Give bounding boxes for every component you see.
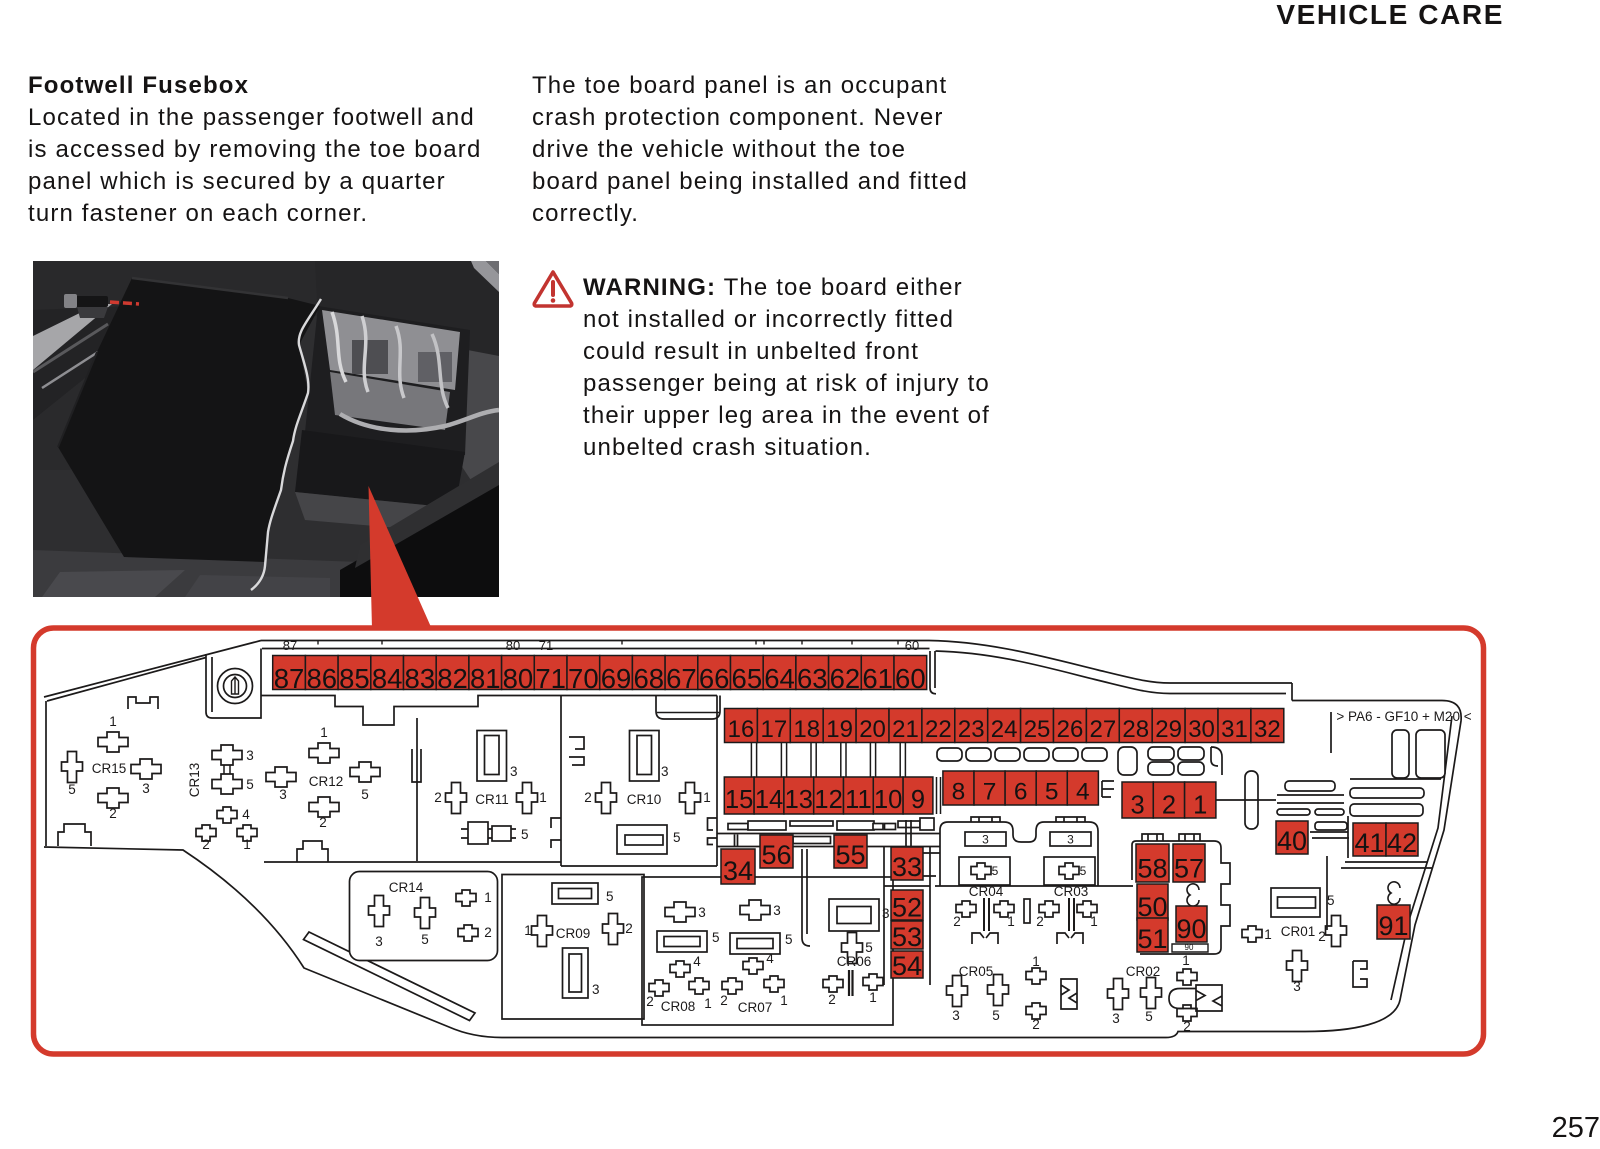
- svg-text:5: 5: [421, 932, 429, 947]
- svg-text:60: 60: [895, 663, 926, 694]
- svg-text:58: 58: [1137, 854, 1167, 884]
- svg-text:CR09: CR09: [556, 926, 591, 941]
- svg-text:CR15: CR15: [92, 761, 127, 776]
- svg-text:1: 1: [1193, 792, 1207, 820]
- svg-text:91: 91: [1378, 911, 1408, 941]
- svg-text:20: 20: [859, 716, 886, 743]
- svg-text:2: 2: [584, 790, 592, 805]
- svg-text:71: 71: [539, 638, 553, 653]
- svg-text:2: 2: [202, 837, 210, 852]
- svg-text:64: 64: [764, 663, 795, 694]
- svg-text:3: 3: [246, 748, 254, 763]
- svg-text:29: 29: [1155, 716, 1182, 743]
- svg-text:69: 69: [601, 663, 632, 694]
- svg-text:1: 1: [869, 990, 877, 1005]
- svg-text:3: 3: [882, 906, 890, 921]
- svg-text:90: 90: [1176, 914, 1206, 944]
- svg-text:CR03: CR03: [1054, 884, 1089, 899]
- svg-text:71: 71: [535, 663, 566, 694]
- svg-text:CR12: CR12: [309, 774, 344, 789]
- svg-text:23: 23: [958, 716, 985, 743]
- svg-text:86: 86: [306, 663, 337, 694]
- svg-text:1: 1: [1182, 953, 1190, 968]
- svg-text:65: 65: [732, 663, 763, 694]
- svg-text:60: 60: [905, 638, 919, 653]
- svg-text:5: 5: [992, 864, 999, 878]
- svg-text:5: 5: [606, 889, 614, 904]
- svg-text:63: 63: [797, 663, 828, 694]
- svg-text:87: 87: [283, 638, 297, 653]
- svg-text:2: 2: [484, 925, 492, 940]
- svg-text:10: 10: [874, 786, 902, 814]
- svg-text:82: 82: [437, 663, 468, 694]
- svg-text:1: 1: [780, 993, 788, 1008]
- svg-text:1: 1: [1264, 927, 1272, 942]
- svg-text:CR07: CR07: [738, 1000, 773, 1015]
- svg-text:2: 2: [1183, 1019, 1191, 1034]
- svg-text:33: 33: [892, 852, 922, 882]
- svg-text:53: 53: [892, 922, 922, 952]
- svg-text:62: 62: [830, 663, 861, 694]
- svg-text:6: 6: [1014, 779, 1028, 806]
- svg-text:CR05: CR05: [959, 964, 994, 979]
- svg-text:3: 3: [982, 833, 989, 847]
- svg-text:67: 67: [666, 663, 697, 694]
- svg-text:> PA6 - GF10 + M20 <: > PA6 - GF10 + M20 <: [1336, 709, 1471, 724]
- svg-text:2: 2: [720, 993, 728, 1008]
- svg-text:3: 3: [1293, 979, 1301, 994]
- svg-text:14: 14: [755, 786, 783, 814]
- svg-text:CR11: CR11: [475, 792, 509, 807]
- svg-text:1: 1: [1090, 914, 1098, 929]
- svg-text:3: 3: [698, 905, 706, 920]
- svg-text:4: 4: [766, 951, 774, 966]
- svg-text:31: 31: [1221, 716, 1248, 743]
- svg-text:3: 3: [142, 781, 150, 796]
- svg-text:81: 81: [470, 663, 501, 694]
- svg-text:1: 1: [539, 790, 547, 805]
- svg-text:42: 42: [1387, 828, 1417, 858]
- svg-text:5: 5: [673, 830, 681, 845]
- svg-text:2: 2: [1032, 1017, 1040, 1032]
- svg-text:56: 56: [761, 840, 791, 870]
- svg-text:3: 3: [510, 764, 518, 779]
- svg-text:5: 5: [992, 1008, 1000, 1023]
- svg-text:21: 21: [892, 716, 919, 743]
- svg-text:32: 32: [1254, 716, 1281, 743]
- svg-text:4: 4: [693, 954, 701, 969]
- svg-text:CR13: CR13: [187, 763, 202, 798]
- svg-text:2: 2: [646, 994, 654, 1009]
- svg-text:87: 87: [274, 663, 305, 694]
- svg-text:4: 4: [1076, 779, 1090, 806]
- svg-text:52: 52: [892, 893, 922, 923]
- svg-text:85: 85: [339, 663, 370, 694]
- svg-text:66: 66: [699, 663, 730, 694]
- svg-text:70: 70: [568, 663, 599, 694]
- svg-text:1: 1: [703, 790, 711, 805]
- svg-text:1: 1: [524, 923, 532, 938]
- svg-text:1: 1: [1007, 914, 1015, 929]
- svg-text:5: 5: [361, 787, 369, 802]
- svg-text:2: 2: [828, 992, 836, 1007]
- svg-text:8: 8: [952, 779, 966, 806]
- svg-text:1: 1: [484, 890, 492, 905]
- svg-text:5: 5: [1045, 779, 1059, 806]
- svg-text:80: 80: [503, 663, 534, 694]
- svg-text:2: 2: [109, 806, 117, 821]
- svg-text:24: 24: [991, 716, 1018, 743]
- svg-text:3: 3: [773, 903, 781, 918]
- svg-text:11: 11: [845, 786, 871, 814]
- svg-text:CR14: CR14: [389, 880, 424, 895]
- svg-text:55: 55: [835, 840, 865, 870]
- svg-text:16: 16: [728, 716, 755, 743]
- svg-text:54: 54: [892, 951, 922, 981]
- svg-text:5: 5: [712, 930, 720, 945]
- svg-text:5: 5: [1327, 893, 1335, 908]
- svg-text:30: 30: [1188, 716, 1215, 743]
- svg-text:3: 3: [952, 1008, 960, 1023]
- svg-text:1: 1: [704, 996, 712, 1011]
- svg-text:5: 5: [865, 940, 873, 955]
- svg-text:80: 80: [506, 638, 520, 653]
- svg-text:3: 3: [1112, 1011, 1120, 1026]
- svg-text:9: 9: [911, 786, 925, 814]
- svg-text:CR10: CR10: [627, 792, 662, 807]
- svg-text:13: 13: [785, 786, 813, 814]
- svg-text:CR08: CR08: [661, 999, 696, 1014]
- svg-text:5: 5: [1080, 864, 1087, 878]
- svg-text:2: 2: [1162, 792, 1176, 820]
- svg-text:12: 12: [814, 786, 842, 814]
- svg-text:19: 19: [826, 716, 853, 743]
- svg-text:26: 26: [1057, 716, 1084, 743]
- svg-text:40: 40: [1277, 826, 1307, 856]
- svg-text:68: 68: [633, 663, 664, 694]
- svg-text:3: 3: [1131, 792, 1145, 820]
- svg-text:CR04: CR04: [969, 884, 1004, 899]
- svg-text:3: 3: [592, 982, 600, 997]
- svg-text:2: 2: [1318, 929, 1326, 944]
- svg-text:2: 2: [434, 790, 442, 805]
- svg-text:5: 5: [521, 827, 529, 842]
- svg-text:3: 3: [375, 934, 383, 949]
- svg-text:17: 17: [760, 716, 787, 743]
- svg-text:28: 28: [1122, 716, 1149, 743]
- svg-text:3: 3: [1067, 833, 1074, 847]
- svg-text:84: 84: [372, 663, 403, 694]
- svg-text:5: 5: [246, 777, 254, 792]
- svg-text:3: 3: [279, 787, 287, 802]
- svg-text:51: 51: [1137, 924, 1167, 954]
- svg-text:3: 3: [661, 764, 669, 779]
- svg-text:1: 1: [109, 714, 117, 729]
- svg-text:25: 25: [1024, 716, 1051, 743]
- svg-text:2: 2: [319, 815, 327, 830]
- svg-text:61: 61: [862, 663, 893, 694]
- svg-text:CR06: CR06: [837, 954, 872, 969]
- svg-text:5: 5: [68, 782, 76, 797]
- svg-text:34: 34: [723, 856, 753, 886]
- svg-text:2: 2: [625, 921, 633, 936]
- svg-text:22: 22: [925, 716, 952, 743]
- svg-text:2: 2: [953, 914, 961, 929]
- svg-text:57: 57: [1174, 854, 1204, 884]
- svg-text:5: 5: [1145, 1009, 1153, 1024]
- svg-text:41: 41: [1354, 828, 1384, 858]
- svg-text:2: 2: [1036, 914, 1044, 929]
- svg-text:4: 4: [242, 807, 250, 822]
- svg-text:1: 1: [243, 837, 251, 852]
- svg-text:1: 1: [1032, 954, 1040, 969]
- svg-text:27: 27: [1089, 716, 1116, 743]
- svg-text:18: 18: [793, 716, 820, 743]
- svg-text:5: 5: [785, 932, 793, 947]
- svg-text:CR01: CR01: [1281, 924, 1316, 939]
- svg-text:83: 83: [405, 663, 436, 694]
- svg-text:15: 15: [725, 786, 753, 814]
- svg-text:1: 1: [320, 725, 328, 740]
- svg-text:7: 7: [983, 779, 997, 806]
